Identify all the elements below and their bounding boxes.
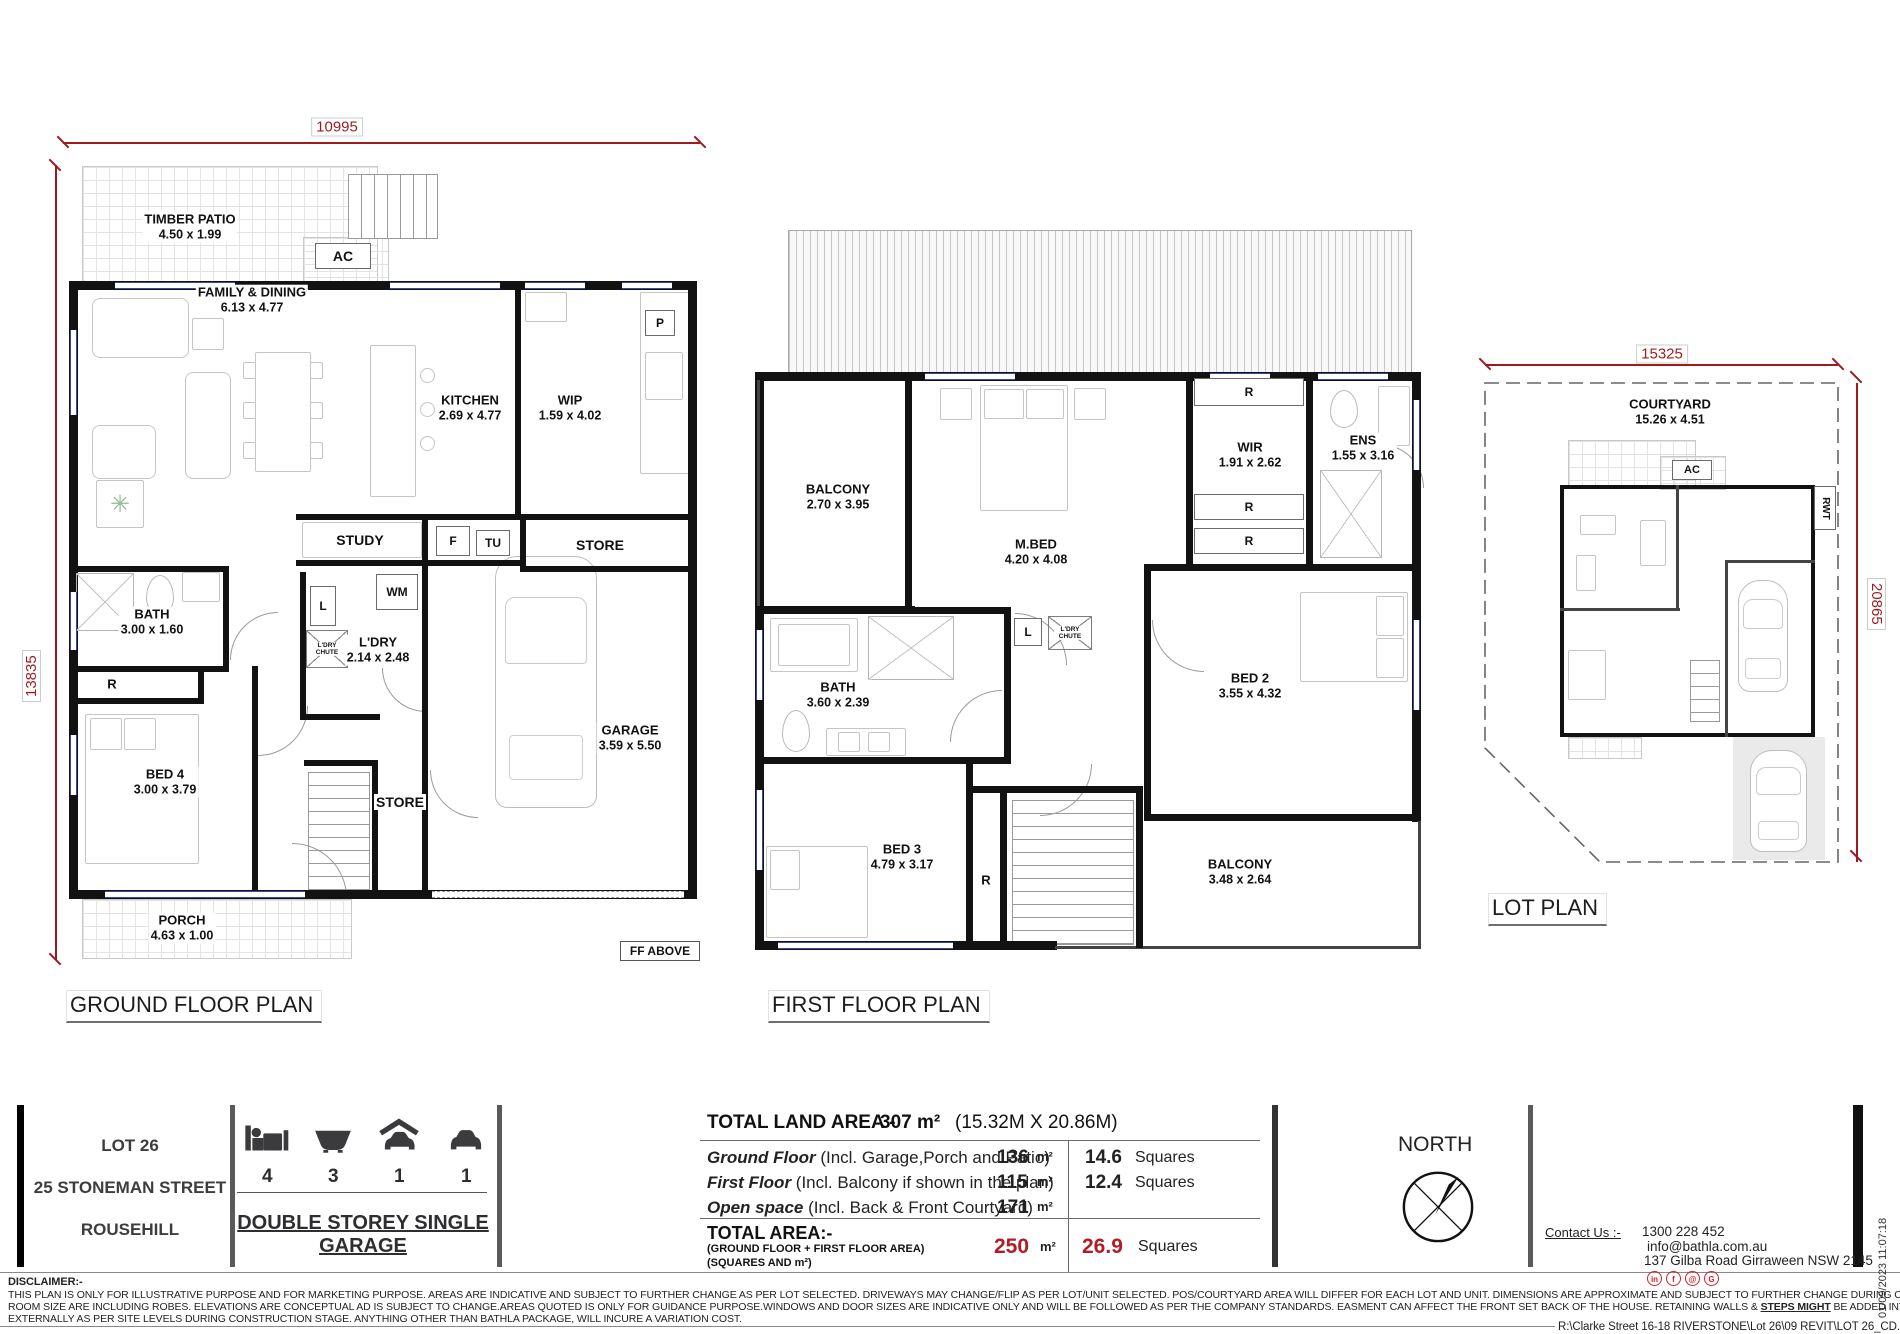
wall [1676, 485, 1679, 611]
room-label-ens: ENS 1.55 x 3.16 [1330, 433, 1397, 464]
rname: BED 3 [869, 842, 936, 858]
area-row-value: 171 [997, 1197, 1029, 1219]
rsize: 4.20 x 4.08 [1003, 552, 1070, 567]
room-label-ldry: L'DRY 2.14 x 2.48 [345, 635, 412, 666]
bedside-table [940, 388, 972, 420]
room-label-wir: WIR 1.91 x 2.62 [1217, 440, 1284, 471]
vanity [182, 572, 220, 602]
element: BE ADDED INTERNALLY OR [1831, 1301, 1900, 1313]
wall [422, 560, 428, 899]
linkedin-icon: in [1647, 1271, 1662, 1286]
facebook-icon: f [1666, 1271, 1681, 1286]
wall [1186, 564, 1421, 571]
porch-area [82, 899, 352, 959]
floorplan-sheet: 10995 13835 AC TIMBER PATIO 4.50 x 1.99 [0, 0, 1900, 1334]
rname: PORCH [149, 913, 216, 929]
robe-shelf: R [1194, 378, 1304, 406]
wall [1000, 786, 1007, 948]
rsize: 4.50 x 1.99 [142, 227, 237, 242]
ital: Open space [707, 1198, 803, 1217]
dining-table [255, 352, 311, 472]
pantry-label: P [645, 310, 675, 336]
rname: ENS [1330, 433, 1397, 449]
total-land-dims: (15.32M X 20.86M) [955, 1112, 1118, 1134]
element [375, 1108, 423, 1160]
wall [296, 514, 689, 520]
tiny: L'DRY CHUTE [311, 642, 343, 656]
wall [755, 607, 1010, 614]
lot-dim-top-line [1485, 364, 1838, 366]
chair [243, 402, 256, 419]
sofa [92, 425, 156, 479]
wall [252, 666, 258, 899]
chair [243, 362, 256, 379]
mini-bed [1568, 650, 1606, 700]
wall [69, 666, 229, 672]
area-row-squares: 14.6 [1085, 1147, 1122, 1169]
room-label-store-bottom: STORE [374, 794, 426, 810]
rsize: 15.26 x 4.51 [1627, 412, 1713, 427]
file-path: R:\Clarke Street 16-18 RIVERSTONE\Lot 26… [1555, 1321, 1900, 1333]
window [70, 330, 77, 415]
rsize: 6.13 x 4.77 [196, 300, 308, 315]
pillow [1026, 389, 1064, 419]
window [778, 942, 953, 949]
room-label-garage: GARAGE 3.59 x 5.50 [597, 723, 664, 754]
area-row-label: Open space (Incl. Back & Front Courtyard… [707, 1198, 1033, 1218]
wall [1306, 372, 1313, 571]
chair [243, 442, 256, 459]
pillow [1376, 596, 1404, 636]
kitchen-island [370, 345, 416, 497]
lot-plan-title: LOT PLAN [1488, 893, 1607, 926]
wall [1560, 733, 1815, 737]
garage-panel-door [432, 891, 684, 898]
lot-dim-right-line [1856, 383, 1858, 862]
ac-unit-label: AC [1672, 460, 1712, 480]
stool [420, 436, 435, 451]
element [315, 1131, 351, 1153]
wall [422, 514, 428, 566]
mini-sofa [1576, 555, 1596, 591]
mini-table [1640, 520, 1666, 566]
rsize: 2.69 x 4.77 [437, 408, 504, 423]
ital: First Floor [707, 1173, 791, 1192]
instagram-icon: @ [1685, 1271, 1700, 1286]
room-label-family-dining: FAMILY & DINING 6.13 x 4.77 [196, 285, 308, 316]
rsize: 3.59 x 5.50 [597, 738, 664, 753]
ff-above-label: FF ABOVE [620, 941, 700, 961]
street-address: 25 STONEMAN STREET [25, 1178, 235, 1198]
wall [1144, 571, 1151, 821]
wall [1560, 485, 1815, 489]
contact-address: 137 Gilba Road Girraween NSW 2145 [1644, 1253, 1873, 1268]
kitchen-sink [525, 292, 567, 322]
window [756, 630, 763, 700]
divider [1528, 1105, 1533, 1267]
wall [1725, 560, 1728, 737]
gf-dim-top-line [63, 142, 700, 144]
rsize: 3.60 x 2.39 [805, 695, 872, 710]
window [1413, 620, 1420, 710]
room-label-timber-patio: TIMBER PATIO 4.50 x 1.99 [142, 212, 237, 243]
divider [17, 1105, 24, 1267]
rname: WIP [537, 393, 604, 409]
element [1399, 1164, 1477, 1246]
balcony-railing [1055, 946, 1421, 949]
lot-number: LOT 26 [25, 1136, 235, 1156]
room-label-balcony-rear: BALCONY 3.48 x 2.64 [1206, 857, 1274, 888]
element [444, 1124, 488, 1154]
ff-plan-title: FIRST FLOOR PLAN [768, 990, 990, 1023]
wall [223, 566, 229, 672]
disclaimer-line1: THIS PLAN IS ONLY FOR ILLUSTRATIVE PURPO… [8, 1289, 1900, 1301]
baths-count: 3 [328, 1166, 339, 1188]
bath-icon [311, 1122, 355, 1156]
gf-plan-title: GROUND FLOOR PLAN [66, 990, 322, 1023]
mini-stairs [1690, 660, 1720, 722]
window [70, 735, 77, 795]
chair [310, 442, 323, 459]
patio-steps [348, 174, 438, 239]
room-label-kitchen: KITCHEN 2.69 x 4.77 [437, 393, 504, 424]
rname: L'DRY [345, 635, 412, 651]
window [390, 282, 500, 289]
rname: BED 2 [1217, 671, 1284, 687]
pillow [770, 850, 800, 890]
element [245, 1126, 288, 1151]
divider [497, 1105, 502, 1267]
rname: GARAGE [597, 723, 664, 739]
toilet [782, 710, 810, 752]
fridge-space: F [436, 526, 470, 556]
social-icons: inf@G [1647, 1270, 1723, 1286]
wall [1725, 560, 1815, 563]
robe-shelf: R [1194, 494, 1304, 520]
room-label-courtyard: COURTYARD 15.26 x 4.51 [1627, 397, 1713, 428]
sofa [185, 372, 231, 479]
element [284, 1130, 289, 1150]
wall [300, 714, 380, 720]
rname: BATH [805, 680, 872, 696]
total-area-value: 250 [994, 1235, 1029, 1259]
element [245, 1126, 250, 1151]
wall [515, 281, 521, 520]
total-area-label: TOTAL AREA:- [707, 1223, 832, 1244]
wall [422, 560, 526, 566]
room-label-wip: WIP 1.59 x 4.02 [537, 393, 604, 424]
element: RWT [1820, 497, 1831, 520]
robe-label: R [979, 873, 992, 888]
wall [1144, 814, 1421, 821]
bathtub-inner [778, 624, 850, 666]
wall [1560, 608, 1680, 611]
wall [372, 760, 378, 899]
robe-label: R [105, 677, 118, 692]
bed-icon [243, 1120, 293, 1156]
gf-dim-left-line [55, 165, 57, 960]
rsize: 3.00 x 3.79 [132, 782, 199, 797]
toilet [1330, 390, 1358, 428]
element [1435, 1177, 1458, 1215]
rname: WIR [1217, 440, 1284, 456]
rsize: 3.48 x 2.64 [1206, 872, 1274, 887]
rsize: 1.59 x 4.02 [537, 408, 604, 423]
shower [1320, 470, 1382, 558]
linen-cupboard: L [1014, 618, 1042, 646]
rname: TIMBER PATIO [142, 212, 237, 228]
area-row-unit: m² [1037, 1199, 1053, 1214]
footer-rule [0, 1272, 1900, 1273]
staircase [1012, 800, 1134, 945]
rname: KITCHEN [437, 393, 504, 409]
window [105, 891, 305, 898]
contact-phone: 1300 228 452 [1642, 1224, 1725, 1239]
element [263, 1133, 282, 1150]
wall [1144, 564, 1193, 571]
tub-space: TU [476, 530, 510, 556]
rname: COURTYARD [1627, 397, 1713, 413]
door-arc [950, 690, 1002, 742]
room-label-bed3: BED 3 4.79 x 3.17 [869, 842, 936, 873]
basin [838, 732, 860, 752]
area-row-unit: m² [1037, 1149, 1053, 1164]
room-label-bath: BATH 3.00 x 1.60 [119, 607, 186, 638]
shower [868, 616, 954, 680]
rsize: 3.00 x 1.60 [119, 622, 186, 637]
total-area-squares: 26.9 [1082, 1235, 1123, 1259]
wall [296, 560, 422, 566]
rsize: 2.14 x 2.48 [345, 650, 412, 665]
wall [1560, 485, 1564, 737]
window [1318, 373, 1388, 380]
washing-machine: WM [376, 574, 418, 610]
dwelling-type: DOUBLE STOREY SINGLE GARAGE [237, 1212, 489, 1258]
room-label-bed4: BED 4 3.00 x 3.79 [132, 767, 199, 798]
room-label-store-top: STORE [574, 537, 626, 553]
suburb: ROUSEHILL [25, 1220, 235, 1240]
element: GARAGE [319, 1235, 407, 1257]
rname: BATH [119, 607, 186, 623]
door-arc [1152, 620, 1204, 672]
table-rule [1068, 1140, 1069, 1272]
element: ROOM SIZE ARE INCLUDING ROBES. ELEVATION… [8, 1301, 1761, 1313]
total-land-value: 307 m² [880, 1112, 940, 1134]
google-icon: G [1704, 1271, 1719, 1286]
wall [1004, 607, 1011, 764]
car-driveway [1750, 750, 1807, 852]
table-rule [700, 1218, 1260, 1219]
table-rule [700, 1140, 1260, 1141]
wall [905, 372, 912, 613]
contact-label: Contact Us :- [1545, 1225, 1621, 1240]
first-floor-plan: BALCONY 2.70 x 3.95 M.BED 4.20 x 4.08 R … [0, 0, 1460, 1030]
robe-shelf: R [1194, 528, 1304, 554]
plant-frame: ✳ [96, 480, 144, 528]
wall [1186, 372, 1193, 571]
wall [69, 566, 229, 572]
area-row-squares-unit: Squares [1135, 1174, 1195, 1192]
balcony-railing [1418, 820, 1421, 948]
bedside-table [1074, 388, 1106, 420]
area-row-value: 136 [997, 1147, 1029, 1169]
contact-email: info@bathla.com.au [1647, 1239, 1767, 1254]
divider [237, 1192, 487, 1193]
pillow [90, 718, 122, 750]
wall [688, 281, 697, 899]
total-land-label: TOTAL LAND AREA - [707, 1112, 896, 1134]
area-row-squares: 12.4 [1085, 1172, 1122, 1194]
total-area-unit: m² [1040, 1239, 1056, 1254]
north-compass-icon [1399, 1164, 1477, 1246]
rname: BALCONY [804, 482, 872, 498]
element [338, 1150, 343, 1153]
stool [420, 368, 435, 383]
gf-dim-height: 13835 [22, 650, 41, 702]
linen-cupboard: L [310, 586, 336, 626]
element [243, 1120, 293, 1156]
rsize: 4.63 x 1.00 [149, 928, 216, 943]
disclaimer-title: DISCLAIMER:- [8, 1276, 83, 1288]
lot-dim-height: 20865 [1867, 578, 1886, 630]
mini-car-garage [1738, 580, 1788, 692]
rsize: 4.79 x 3.17 [869, 857, 936, 872]
area-row-squares-unit: Squares [1135, 1149, 1195, 1167]
disclaimer-line2: ROOM SIZE ARE INCLUDING ROBES. ELEVATION… [8, 1301, 1900, 1313]
wall [304, 760, 378, 766]
rsize: 1.91 x 2.62 [1217, 455, 1284, 470]
divider [1853, 1105, 1863, 1267]
element [451, 1130, 481, 1149]
rsize: 1.55 x 3.16 [1330, 448, 1397, 463]
laundry-chute: L'DRY CHUTE [1048, 616, 1092, 650]
element [252, 1128, 261, 1137]
roof-band [788, 230, 1412, 375]
gf-dim-width: 10995 [311, 118, 363, 137]
rname: FAMILY & DINING [196, 285, 308, 301]
chair [310, 402, 323, 419]
room-label-bed2: BED 2 3.55 x 4.32 [1217, 671, 1284, 702]
ital: Ground Floor [707, 1148, 816, 1167]
element [315, 1131, 351, 1150]
element [323, 1150, 328, 1153]
window [622, 282, 672, 289]
pillow [984, 389, 1024, 419]
pillow [1376, 638, 1404, 678]
element [252, 1138, 263, 1151]
coffee-table [192, 318, 224, 350]
tiny: L'DRY CHUTE [1054, 626, 1086, 640]
timestamp: 01/09/2023 11:07:18 [1877, 1218, 1889, 1318]
cooktop [645, 352, 683, 400]
rname: BALCONY [1206, 857, 1274, 873]
window [925, 373, 1015, 380]
room-label-study: STUDY [334, 532, 385, 548]
north-label: NORTH [1398, 1133, 1472, 1157]
window [525, 282, 585, 289]
room-label-mbed: M.BED 4.20 x 4.08 [1003, 537, 1070, 568]
pillow [124, 718, 156, 750]
total-area-squares-unit: Squares [1138, 1238, 1198, 1256]
laundry-chute: L'DRY CHUTE [306, 630, 348, 668]
chair [310, 362, 323, 379]
rsize: 2.70 x 3.95 [804, 497, 872, 512]
total-area-sub1: (GROUND FLOOR + FIRST FLOOR AREA) [707, 1243, 924, 1255]
lot-plan: 15325 20865 COURTYARD 15.26 x 4.51 AC [1450, 330, 1900, 950]
mini-sofa [1580, 515, 1616, 535]
element [311, 1122, 355, 1156]
total-area-sub2: (SQUARES AND m²) [707, 1257, 812, 1269]
rainwater-tank: RWT [1814, 486, 1836, 530]
element [379, 1118, 419, 1149]
divider [1272, 1105, 1278, 1267]
room-label-bath-ff: BATH 3.60 x 2.39 [805, 680, 872, 711]
lot-dim-width: 15325 [1636, 345, 1688, 364]
cars-count: 1 [461, 1166, 472, 1188]
ac-unit-label: AC [315, 243, 371, 269]
element [385, 1132, 415, 1150]
wall [69, 698, 204, 704]
wall [1136, 786, 1143, 948]
mini-porch [1568, 737, 1642, 759]
window [756, 790, 763, 870]
balcony-railing [757, 380, 760, 608]
rsize: 3.55 x 4.32 [1217, 686, 1284, 701]
carport-icon [375, 1108, 423, 1160]
rname: M.BED [1003, 537, 1070, 553]
car-icon [444, 1124, 488, 1154]
carports-count: 1 [394, 1166, 405, 1188]
room-label-porch: PORCH 4.63 x 1.00 [149, 913, 216, 944]
element: STEPS MIGHT [1761, 1301, 1831, 1313]
element: DOUBLE STOREY SINGLE [237, 1212, 489, 1234]
stool [420, 402, 435, 417]
window [70, 592, 77, 650]
window [1413, 400, 1420, 470]
wall [966, 786, 1143, 793]
area-row-unit: m² [1037, 1174, 1053, 1189]
room-label-balcony-front: BALCONY 2.70 x 3.95 [804, 482, 872, 513]
area-row-value: 115 [997, 1172, 1028, 1194]
rname: BED 4 [132, 767, 199, 783]
wall [520, 566, 689, 572]
beds-count: 4 [262, 1166, 273, 1188]
sofa [92, 298, 189, 358]
car-outline [495, 556, 597, 808]
disclaimer-line3: EXTERNALLY AS PER SITE LEVELS DURING CON… [8, 1313, 742, 1325]
basin [868, 732, 890, 752]
